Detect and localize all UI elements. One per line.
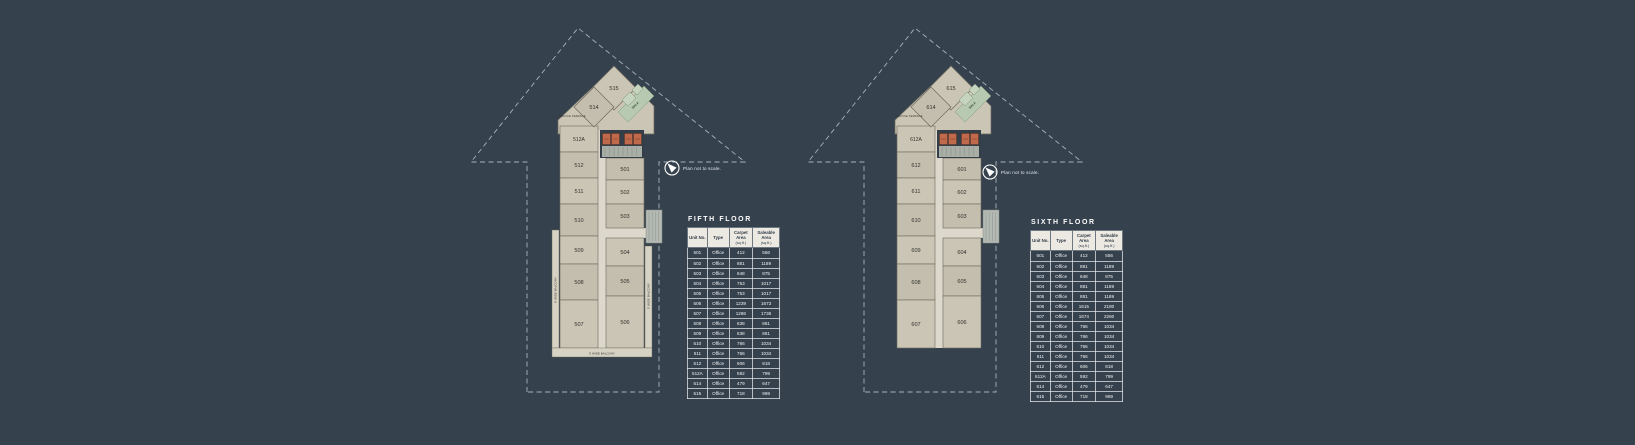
unit-label: 602 — [957, 190, 966, 196]
table-cell: 969 — [753, 389, 780, 399]
column-header: Unit No. — [688, 228, 708, 248]
unit-label: 505 — [620, 279, 629, 285]
table-cell: 818 — [753, 358, 780, 368]
corridor — [935, 130, 943, 348]
table-cell: 766 — [729, 338, 753, 348]
table-cell: 969 — [1096, 392, 1123, 402]
table-cell: 818 — [1096, 361, 1123, 371]
unit-label: 609 — [911, 248, 920, 254]
scale-note-label: Plan not to scale. — [683, 166, 721, 171]
table-row: 502Office8811189 — [688, 258, 780, 268]
table-cell: Office — [1050, 281, 1072, 291]
table-row: 510Office7661034 — [688, 338, 780, 348]
table-cell: Office — [1050, 341, 1072, 351]
table-cell: 1673 — [753, 298, 780, 308]
unit-label: 604 — [957, 250, 966, 256]
table-cell: 1189 — [753, 258, 780, 268]
table-cell: 602 — [1031, 261, 1051, 271]
table-cell: Office — [707, 318, 729, 328]
table-cell: 509 — [688, 328, 708, 338]
table-cell: Office — [1050, 382, 1072, 392]
table-cell: 718 — [1072, 392, 1096, 402]
table-row: 612Office606818 — [1031, 361, 1123, 371]
stair-block — [939, 146, 979, 157]
north-arrow-icon — [667, 163, 676, 172]
table-cell: 607 — [1031, 311, 1051, 321]
table-cell: 1034 — [1096, 351, 1123, 361]
table-cell: 592 — [1072, 372, 1096, 382]
unit-label: 606 — [957, 320, 966, 326]
unit-label: 512 — [574, 163, 583, 169]
table-cell: 861 — [753, 318, 780, 328]
table-cell: 1189 — [1096, 261, 1123, 271]
column-header: Carpet Area(sq.ft.) — [729, 228, 753, 248]
table-cell: 615 — [1031, 392, 1051, 402]
table-cell: 1615 — [1072, 301, 1096, 311]
table-cell: Office — [707, 278, 729, 288]
table-cell: 881 — [1072, 281, 1096, 291]
table-row: 606Office16152180 — [1031, 301, 1123, 311]
table-cell: 881 — [1072, 291, 1096, 301]
table-cell: 612A — [1031, 372, 1051, 382]
table-cell: 1286 — [729, 308, 753, 318]
table-cell: 1674 — [1072, 311, 1096, 321]
unit-label: 506 — [620, 320, 629, 326]
table-row: 607Office16742260 — [1031, 311, 1123, 321]
table-row: 512Office606818 — [688, 358, 780, 368]
table-cell: 1239 — [729, 298, 753, 308]
unit-label: 507 — [574, 322, 583, 328]
table-cell: 606 — [1031, 301, 1051, 311]
corridor — [598, 130, 606, 348]
table-row: 612AOffice592799 — [1031, 372, 1123, 382]
table-cell: Office — [707, 288, 729, 298]
table-row: 509Office638861 — [688, 328, 780, 338]
table-cell: 1034 — [1096, 341, 1123, 351]
unit-label: 612A — [910, 137, 922, 143]
unit-label: 514 — [589, 105, 598, 111]
table-cell: 638 — [729, 328, 753, 338]
table-cell: 511 — [688, 348, 708, 358]
table-cell: 881 — [729, 258, 753, 268]
table-cell: 412 — [1072, 251, 1096, 261]
table-row: 611Office7661034 — [1031, 351, 1123, 361]
table-cell: 647 — [753, 379, 780, 389]
table-cell: Office — [707, 248, 729, 258]
table-cell: 604 — [1031, 281, 1051, 291]
table-cell: 514 — [688, 379, 708, 389]
site-plan-canvas: 512A512511510509508507501502503504505506… — [0, 0, 1635, 445]
table-cell: 799 — [753, 369, 780, 379]
column-header: Unit No. — [1031, 231, 1051, 251]
table-row: 511Office7661034 — [688, 348, 780, 358]
table-cell: 1034 — [753, 348, 780, 358]
table-cell: 1034 — [1096, 321, 1123, 331]
table-cell: Office — [707, 328, 729, 338]
unit-label: 502 — [620, 190, 629, 196]
table-row: 603Office648875 — [1031, 271, 1123, 281]
table-row: 506Office12391673 — [688, 298, 780, 308]
table-cell: Office — [707, 258, 729, 268]
table-row: 609Office7661034 — [1031, 331, 1123, 341]
unit-label: 508 — [574, 280, 583, 286]
table-cell: Office — [707, 369, 729, 379]
corridor-branch — [943, 228, 987, 238]
table-cell: 601 — [1031, 251, 1051, 261]
table-row: 610Office7661034 — [1031, 341, 1123, 351]
table-cell: 592 — [729, 369, 753, 379]
table-cell: Office — [707, 298, 729, 308]
table-row: 602Office8811189 — [1031, 261, 1123, 271]
table-cell: Office — [1050, 331, 1072, 341]
table-row: 505Office7531017 — [688, 288, 780, 298]
table-cell: 512A — [688, 369, 708, 379]
table-cell: 556 — [1096, 251, 1123, 261]
table-row: 615Office718969 — [1031, 392, 1123, 402]
table-cell: 515 — [688, 389, 708, 399]
unit-label: 608 — [911, 280, 920, 286]
unit-label: 612 — [911, 163, 920, 169]
table-cell: 605 — [1031, 291, 1051, 301]
table-cell: Office — [1050, 392, 1072, 402]
table-row: 608Office7661034 — [1031, 321, 1123, 331]
external-stair — [983, 210, 999, 243]
balcony-label-bottom: 5' WIDE BALCONY — [589, 352, 615, 356]
unit-label: 607 — [911, 322, 920, 328]
unit-label: 503 — [620, 214, 629, 220]
table-cell: 1034 — [753, 338, 780, 348]
table-cell: Office — [707, 308, 729, 318]
table-cell: 506 — [688, 298, 708, 308]
table-cell: 1189 — [1096, 291, 1123, 301]
table-cell: 606 — [729, 358, 753, 368]
table-row: 614Office479647 — [1031, 382, 1123, 392]
table-cell: 412 — [729, 248, 753, 258]
table-cell: 501 — [688, 248, 708, 258]
column-header: Saleable Area(sq.ft.) — [1096, 231, 1123, 251]
table-cell: 606 — [1072, 361, 1096, 371]
unit-label: 615 — [946, 86, 955, 92]
column-header: Carpet Area(sq.ft.) — [1072, 231, 1096, 251]
table-cell: Office — [1050, 251, 1072, 261]
sixth-floor-panel: SIXTH FLOOR Unit No.TypeCarpet Area(sq.f… — [1030, 219, 1126, 402]
unit-label: 504 — [620, 250, 629, 256]
table-cell: 875 — [753, 268, 780, 278]
balcony-label-left: 5' WIDE BALCONY — [554, 277, 558, 303]
table-cell: Office — [707, 389, 729, 399]
table-cell: 753 — [729, 278, 753, 288]
table-cell: Office — [1050, 301, 1072, 311]
fifth-floor-panel: FIFTH FLOOR Unit No.TypeCarpet Area(sq.f… — [687, 216, 783, 399]
table-cell: Office — [707, 268, 729, 278]
unit-label: 605 — [957, 279, 966, 285]
table-cell: 1017 — [753, 288, 780, 298]
table-row: 503Office648875 — [688, 268, 780, 278]
column-header: Saleable Area(sq.ft.) — [753, 228, 780, 248]
table-cell: 611 — [1031, 351, 1051, 361]
table-cell: Office — [707, 338, 729, 348]
table-cell: 1017 — [753, 278, 780, 288]
unit-label: 512A — [573, 137, 585, 143]
table-cell: 614 — [1031, 382, 1051, 392]
table-row: 501Office412556 — [688, 248, 780, 258]
table-cell: 505 — [688, 288, 708, 298]
external-stair — [646, 210, 662, 243]
sixth-floor-title: SIXTH FLOOR — [1031, 219, 1126, 226]
unit-label: 610 — [911, 218, 920, 224]
table-cell: 1736 — [753, 308, 780, 318]
table-cell: Office — [707, 348, 729, 358]
table-cell: Office — [1050, 271, 1072, 281]
table-cell: 766 — [1072, 321, 1096, 331]
service-terrace-label: SERVICE TERRACE — [895, 114, 922, 118]
table-cell: 648 — [1072, 271, 1096, 281]
unit-label: 603 — [957, 214, 966, 220]
table-row: 605Office8811189 — [1031, 291, 1123, 301]
corridor-branch — [606, 228, 650, 238]
table-row: 504Office7531017 — [688, 278, 780, 288]
table-cell: 510 — [688, 338, 708, 348]
table-cell: 2180 — [1096, 301, 1123, 311]
fifth-floor-title: FIFTH FLOOR — [688, 216, 783, 223]
table-cell: 1189 — [1096, 281, 1123, 291]
unit-label: 601 — [957, 167, 966, 173]
table-cell: Office — [1050, 361, 1072, 371]
table-cell: 718 — [729, 389, 753, 399]
table-cell: 479 — [729, 379, 753, 389]
floor-plans-page: { "scale_note": "Plan not to scale.", "c… — [0, 0, 1635, 445]
table-cell: 610 — [1031, 341, 1051, 351]
table-cell: 861 — [753, 328, 780, 338]
table-cell: Office — [1050, 291, 1072, 301]
table-cell: Office — [707, 379, 729, 389]
table-cell: 503 — [688, 268, 708, 278]
table-cell: 766 — [1072, 341, 1096, 351]
table-cell: Office — [1050, 321, 1072, 331]
column-header: Type — [707, 228, 729, 248]
table-cell: 638 — [729, 318, 753, 328]
unit-label: 511 — [575, 189, 584, 195]
unit-label: 515 — [609, 86, 618, 92]
stair-block — [602, 146, 642, 157]
table-row: 507Office12861736 — [688, 308, 780, 318]
unit-label: 510 — [574, 218, 583, 224]
table-cell: 508 — [688, 318, 708, 328]
fifth-floor-area-table: Unit No.TypeCarpet Area(sq.ft.)Saleable … — [687, 227, 780, 399]
table-cell: 608 — [1031, 321, 1051, 331]
service-terrace-label: SERVICE TERRACE — [558, 114, 585, 118]
table-row: 512AOffice592799 — [688, 369, 780, 379]
unit-label: 614 — [926, 105, 935, 111]
unit-label: 501 — [620, 167, 629, 173]
table-cell: Office — [707, 358, 729, 368]
unit-label: 509 — [574, 248, 583, 254]
balcony-label-right: 5' WIDE BALCONY — [647, 283, 651, 309]
table-cell: 502 — [688, 258, 708, 268]
table-row: 601Office412556 — [1031, 251, 1123, 261]
table-cell: 1034 — [1096, 331, 1123, 341]
table-cell: 612 — [1031, 361, 1051, 371]
table-cell: 766 — [1072, 351, 1096, 361]
table-cell: 766 — [729, 348, 753, 358]
table-cell: 753 — [729, 288, 753, 298]
unit-label: 611 — [912, 189, 921, 195]
table-cell: 603 — [1031, 271, 1051, 281]
scale-note-label: Plan not to scale. — [1001, 170, 1039, 175]
table-cell: 507 — [688, 308, 708, 318]
column-header: Type — [1050, 231, 1072, 251]
table-cell: 647 — [1096, 382, 1123, 392]
table-cell: 609 — [1031, 331, 1051, 341]
table-cell: 504 — [688, 278, 708, 288]
table-row: 604Office8811189 — [1031, 281, 1123, 291]
table-row: 515Office718969 — [688, 389, 780, 399]
table-cell: 512 — [688, 358, 708, 368]
table-cell: Office — [1050, 372, 1072, 382]
table-row: 514Office479647 — [688, 379, 780, 389]
table-cell: 2260 — [1096, 311, 1123, 321]
table-row: 508Office638861 — [688, 318, 780, 328]
table-cell: 556 — [753, 248, 780, 258]
table-cell: 875 — [1096, 271, 1123, 281]
table-cell: 479 — [1072, 382, 1096, 392]
table-cell: 648 — [729, 268, 753, 278]
table-cell: 799 — [1096, 372, 1123, 382]
table-cell: 881 — [1072, 261, 1096, 271]
sixth-floor-area-table: Unit No.TypeCarpet Area(sq.ft.)Saleable … — [1030, 230, 1123, 402]
table-cell: Office — [1050, 351, 1072, 361]
north-arrow-icon — [985, 167, 994, 176]
table-cell: 766 — [1072, 331, 1096, 341]
table-cell: Office — [1050, 261, 1072, 271]
table-cell: Office — [1050, 311, 1072, 321]
